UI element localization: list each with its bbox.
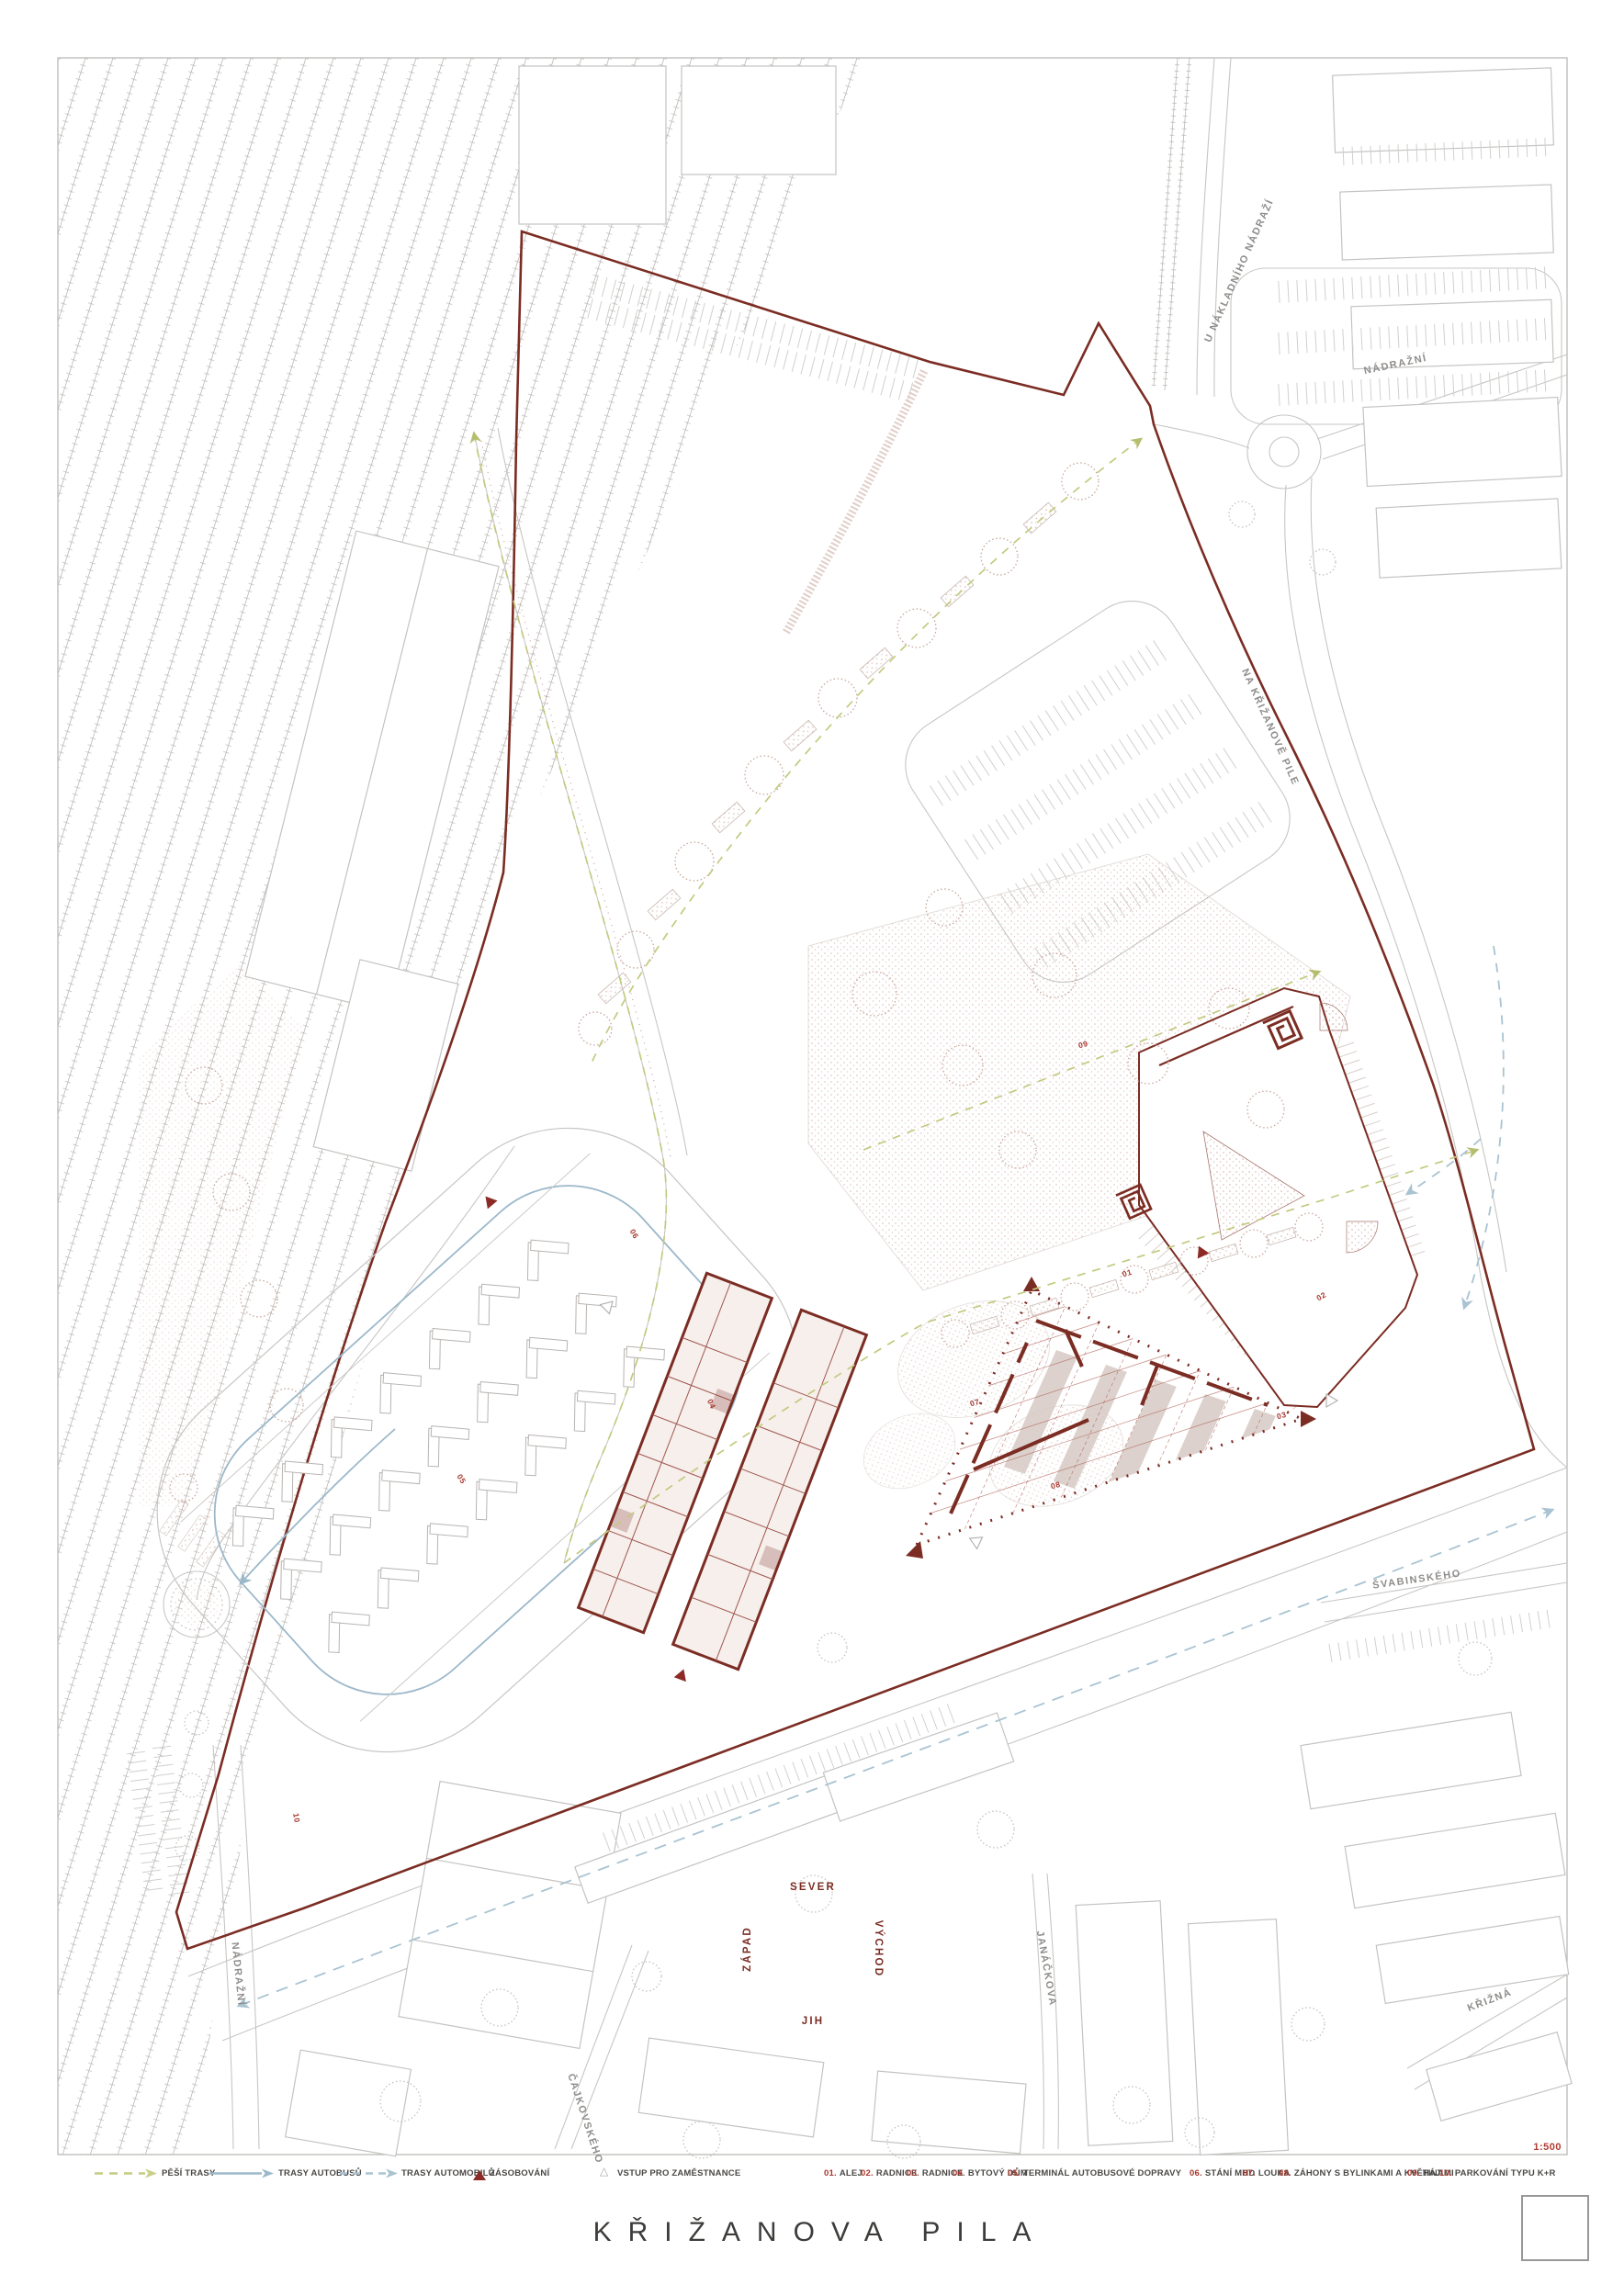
bus-route-legend-icon	[209, 2167, 276, 2179]
legend-item-01: 01.ALEJ	[824, 2168, 863, 2178]
legend-vstup-pro-zamestnance: VSTUP PRO ZAMĚSTNANCE	[617, 2168, 740, 2178]
legend-item-10: 10.PARKOVÁNÍ TYPU K+R	[1439, 2168, 1556, 2178]
sheet-title: KŘIŽANOVA PILA	[0, 2217, 1624, 2248]
masterplan-sheet: { "title": "KŘIŽANOVA PILA", "scale": "1…	[0, 0, 1624, 2296]
legend-pesi-trasy: PĚŠÍ TRASY	[162, 2168, 216, 2178]
pedestrian-route-legend-icon	[95, 2167, 159, 2179]
legend-zasobovani: ZÁSOBOVÁNÍ	[490, 2168, 549, 2178]
compass-east-label: VÝCHOD	[873, 1920, 885, 1977]
staff-entry-legend-icon: △	[600, 2165, 608, 2178]
legend-item-09: 09.HÁJ	[1407, 2168, 1440, 2178]
supply-triangle-legend-icon	[473, 2170, 486, 2180]
compass-north-label: SEVER	[790, 1882, 836, 1893]
scale-label: 1:500	[1533, 2142, 1562, 2153]
site-plan-drawing: SEVER JIH ZÁPAD VÝCHOD U NÁKLADNÍHO NÁDR…	[0, 0, 1624, 2296]
title-block-box	[1521, 2195, 1589, 2261]
compass-west-label: ZÁPAD	[741, 1926, 753, 1972]
compass-south-label: JIH	[802, 2016, 825, 2027]
car-route-legend-icon	[340, 2167, 400, 2179]
legend-item-05: 05.TERMINÁL AUTOBUSOVÉ DOPRAVY	[1008, 2168, 1181, 2178]
plan-number-10: 10	[291, 1812, 302, 1823]
legend-bar: PĚŠÍ TRASY TRASY AUTOBUSŮ TRASY AUTOMOBI…	[0, 2162, 1624, 2189]
